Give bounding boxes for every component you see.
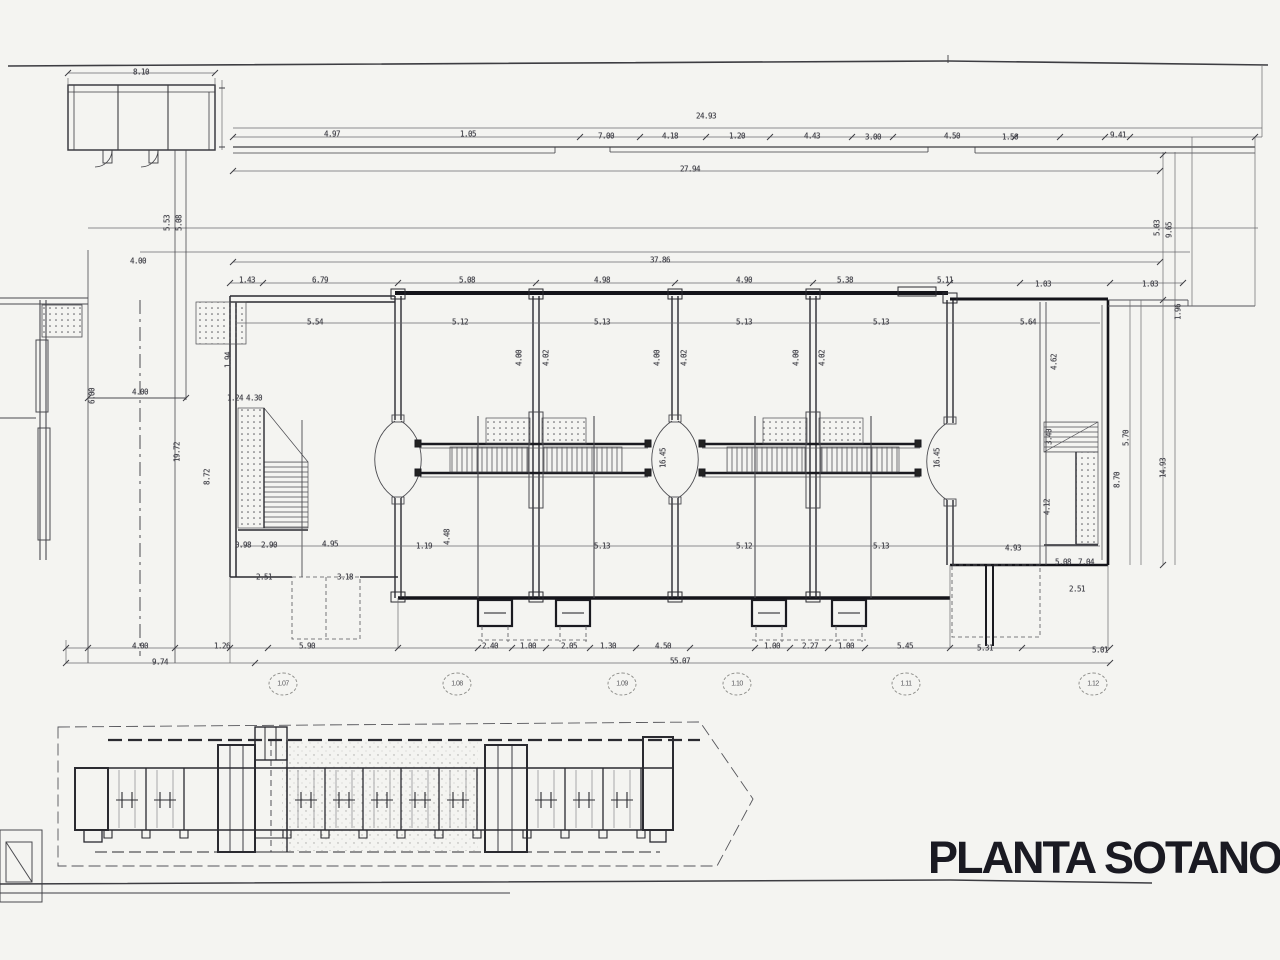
roof-plan — [0, 722, 753, 902]
stair-core-left — [450, 412, 622, 598]
fence-band — [233, 147, 1255, 153]
plan-dimension-lines — [66, 137, 1255, 663]
stair-core-right — [727, 412, 899, 598]
left-site-lines — [0, 150, 186, 663]
garage-block — [68, 85, 215, 167]
upper-dimension-chains — [68, 66, 1262, 262]
end-stair-left — [196, 302, 308, 577]
corner-fragment — [0, 830, 42, 902]
porches — [292, 565, 1040, 646]
outer-walls — [230, 287, 1255, 598]
site-boundary — [8, 55, 1268, 66]
party-walls — [391, 289, 957, 602]
main-floor-plan — [63, 70, 1258, 666]
blueprint-drawing — [0, 0, 1280, 960]
blueprint-sheet: 8.1024.934.971.057.004.181.204.433.004.5… — [0, 0, 1280, 960]
plan-title: PLANTA SOTANO — [928, 832, 1280, 884]
end-stair-right — [1040, 302, 1098, 565]
